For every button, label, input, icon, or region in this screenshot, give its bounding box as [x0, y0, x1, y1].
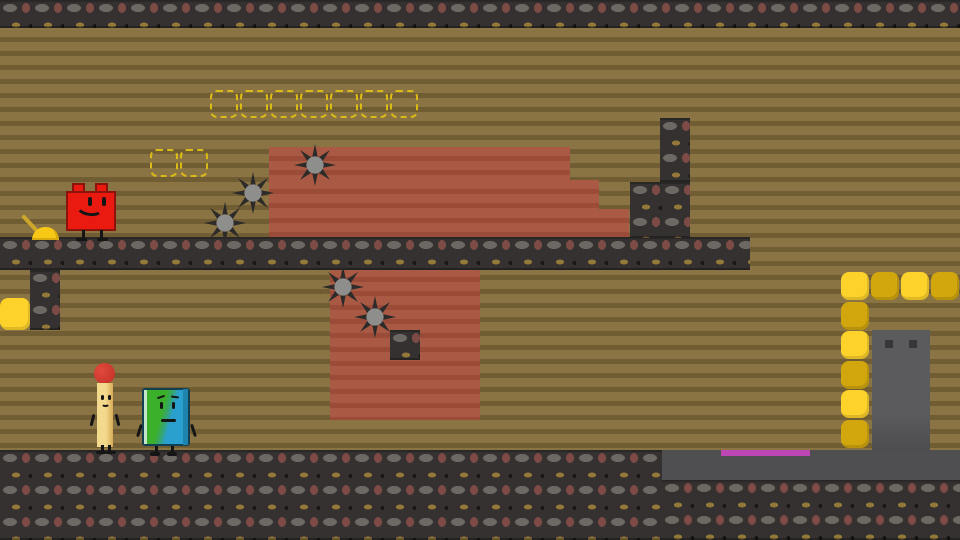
blocky-foot [76, 238, 87, 241]
match-stick [97, 383, 113, 447]
spike-hazard [292, 142, 338, 188]
book-foot [150, 452, 160, 456]
book-pages [144, 390, 147, 444]
coin[interactable] [931, 272, 959, 300]
book-foot [167, 452, 177, 456]
coin-outline [270, 90, 298, 118]
coin[interactable] [841, 361, 869, 389]
coin[interactable] [841, 302, 869, 330]
coin-outline [210, 90, 238, 118]
coin[interactable] [841, 331, 869, 359]
terrain-block [662, 480, 960, 540]
coin-outline [390, 90, 418, 118]
finish-line[interactable] [721, 450, 810, 456]
game-viewport[interactable] [0, 0, 960, 540]
coin[interactable] [841, 390, 869, 418]
match-eye [108, 395, 111, 400]
match-arm [90, 414, 95, 426]
blocky-foot [97, 238, 108, 241]
match-foot [106, 451, 116, 454]
coin-outline [300, 90, 328, 118]
book-arm [190, 424, 196, 437]
book-spine [183, 389, 188, 445]
terrain-block [30, 270, 60, 330]
exit-door[interactable] [872, 330, 930, 450]
coin[interactable] [871, 272, 899, 300]
coin-outline [180, 149, 208, 177]
coin-outline [150, 149, 178, 177]
coin-outline [360, 90, 388, 118]
rust-block [269, 209, 629, 239]
coin[interactable] [901, 272, 929, 300]
match-arm [115, 414, 120, 426]
match-tip [94, 363, 115, 384]
match-foot [96, 451, 106, 454]
terrain-block [0, 0, 960, 28]
character-blocky [64, 182, 118, 242]
book-eye [160, 402, 163, 409]
terrain-block [630, 182, 690, 238]
lever-button[interactable] [22, 212, 62, 240]
book-mouth [161, 419, 176, 422]
coin-outline [330, 90, 358, 118]
book-eye [172, 402, 175, 409]
terrain-block [0, 450, 662, 540]
spike-hazard [352, 294, 398, 340]
stone-platform [662, 450, 960, 480]
match-smile [101, 400, 110, 407]
coin[interactable] [0, 298, 30, 330]
coin-outline [240, 90, 268, 118]
spike-hazard [202, 200, 248, 246]
coin[interactable] [841, 272, 869, 300]
character-book [141, 386, 195, 456]
terrain-block [660, 118, 690, 182]
coin[interactable] [841, 420, 869, 448]
character-match [93, 362, 119, 456]
